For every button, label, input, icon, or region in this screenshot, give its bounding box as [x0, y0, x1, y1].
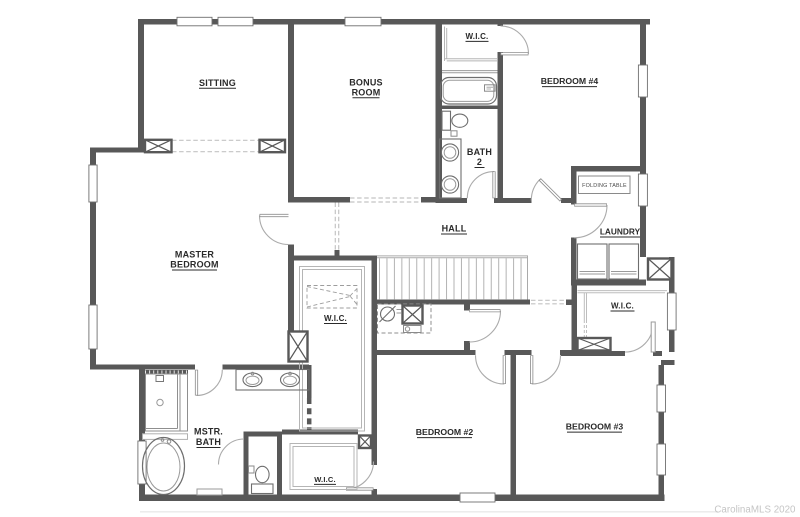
svg-text:W.I.C.: W.I.C. — [611, 302, 634, 311]
svg-text:MASTER: MASTER — [175, 250, 214, 260]
svg-text:BATH: BATH — [467, 147, 492, 157]
svg-text:BATH: BATH — [196, 437, 221, 447]
svg-text:W.I.C.: W.I.C. — [314, 475, 336, 484]
svg-text:BEDROOM: BEDROOM — [170, 260, 218, 270]
svg-text:2: 2 — [477, 157, 482, 167]
svg-text:HALL: HALL — [442, 224, 467, 234]
svg-text:BEDROOM #4: BEDROOM #4 — [541, 76, 599, 86]
svg-text:BEDROOM #3: BEDROOM #3 — [566, 422, 624, 432]
svg-text:SITTING: SITTING — [199, 78, 236, 88]
svg-text:MSTR.: MSTR. — [194, 427, 223, 437]
svg-text:CarolinaMLS 2020: CarolinaMLS 2020 — [714, 504, 796, 515]
svg-text:ROOM: ROOM — [352, 87, 381, 97]
svg-text:BONUS: BONUS — [349, 77, 383, 87]
svg-text:W.I.C.: W.I.C. — [324, 314, 347, 323]
svg-text:W.I.C.: W.I.C. — [466, 32, 489, 41]
svg-text:BEDROOM #2: BEDROOM #2 — [416, 427, 474, 437]
svg-text:LAUNDRY: LAUNDRY — [600, 227, 641, 237]
svg-text:FOLDING TABLE: FOLDING TABLE — [582, 183, 627, 189]
